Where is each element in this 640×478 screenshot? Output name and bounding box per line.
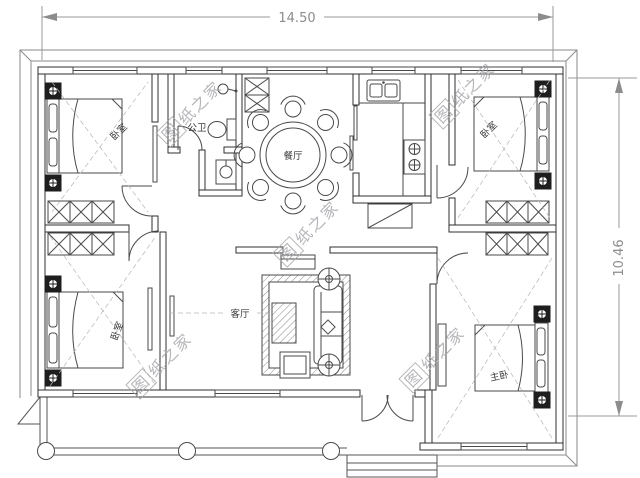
coffee-table [280,352,310,378]
toilet-icon [208,119,236,140]
dimension-arrow [615,401,623,416]
door-entrance-double [362,395,413,421]
entry-steps [347,455,437,477]
room-label-dining: 餐厅 [283,150,303,162]
dimension-height-label: 10.46 [612,239,627,276]
door-bedroom-top-right [437,165,468,198]
dimension-right: 10.46 [568,78,637,416]
porch-column [179,443,196,460]
window-top-4 [372,67,415,74]
wardrobe-cell [486,201,507,223]
wardrobe-cell [70,201,92,223]
stove-icon [404,140,425,174]
plant-icon [318,268,340,290]
sofa [314,286,342,364]
wardrobe-cell [528,233,548,255]
wash-basin-icon [216,160,236,184]
window-bottom-2 [215,390,280,397]
wardrobe-cell [92,233,114,255]
plant-icon [318,354,340,376]
wardrobe-cell [486,233,507,255]
window-top-3 [267,67,327,74]
dimension-width-label: 14.50 [278,11,315,26]
window-bottom-1 [73,390,137,397]
door-bedroom-bottom-left [129,231,159,261]
wardrobe-cell [70,233,92,255]
wardrobe-cell [507,233,528,255]
wardrobe-cell [92,201,114,223]
flue-box [245,78,269,112]
window-top-1 [73,67,137,74]
dimension-arrow [538,13,553,21]
entry-ramp [18,397,40,424]
porch [38,397,438,477]
wardrobe-cell [48,201,70,223]
porch-column [323,443,340,460]
window-top-2 [186,67,222,74]
wardrobe-cell [48,233,70,255]
dimension-top: 14.50 [42,6,553,62]
floor-plan-canvas: 14.50 10.46 卧室 公卫 餐厅 卧室 卧室 客厅 主卧 图纸之家 图纸… [0,0,640,478]
living-room-furniture [262,268,350,378]
bed-master [475,306,550,408]
side-cabinet [368,204,412,228]
kitchen-sink-icon [367,80,400,101]
floor-plan-drawing: 14.50 10.46 卧室 公卫 餐厅 卧室 卧室 客厅 主卧 [0,0,640,478]
dining-chair [281,96,305,117]
room-label-living: 客厅 [230,308,250,320]
wardrobe-cell [528,201,549,223]
porch-column [38,443,55,460]
dimension-arrow [615,78,623,93]
wardrobe-cell [507,201,528,223]
dimension-arrow [42,13,57,21]
tv-icon [272,303,296,343]
kitchen-fixtures [359,80,425,196]
window-master [461,443,527,450]
door-master-bedroom [437,253,468,284]
